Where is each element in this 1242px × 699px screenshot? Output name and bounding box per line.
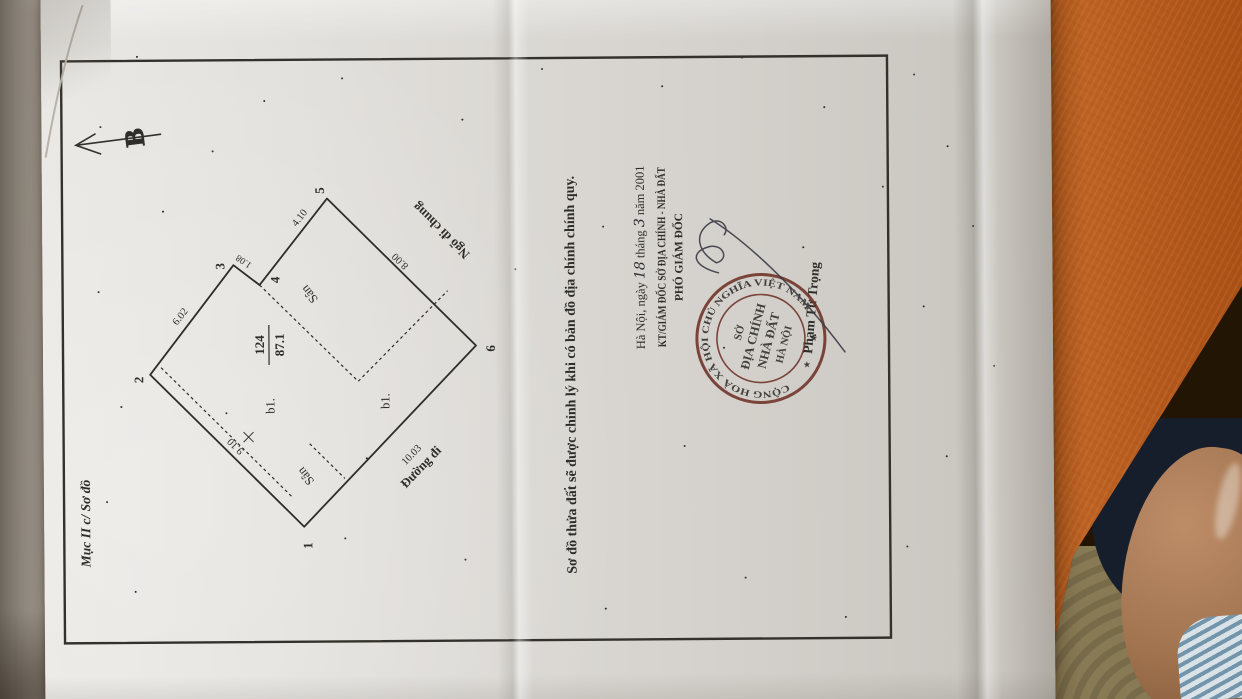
stamp-outer-ring [683, 260, 839, 416]
parcel-number: 124 [252, 335, 267, 355]
stamp-center-line: HÀ NỘI [773, 324, 795, 364]
month-word: tháng [633, 230, 647, 259]
stamp-center-line: SỞ [732, 324, 747, 342]
vertex-label: 5 [312, 187, 327, 194]
official-stamp: CỘNG HOÀ XÃ HỘI CHỦ NGHĨA VIỆT NAM ★ ★ S… [683, 260, 839, 416]
diagram-frame [61, 56, 891, 644]
stamp-inner-ring [707, 285, 814, 392]
vertex-label: 2 [131, 377, 146, 384]
photo-of-land-plot-document: Mục II c/ Sơ đồ B 1 2 3 4 5 6 [0, 0, 1242, 699]
signature-block: Hà Nội, ngày 18 tháng 3 năm 2001 KT/GIÁM… [632, 165, 686, 349]
interior-dashed-line [161, 367, 292, 498]
parcel-area: 87.1 [272, 333, 287, 356]
stamp-center-line: NHÀ ĐẤT [754, 310, 783, 370]
stamp-ring-path [696, 274, 810, 399]
dimension-label: 8.00 [390, 250, 411, 271]
north-label: B [118, 127, 150, 149]
parcel-boundary [149, 198, 477, 528]
stamp-center-line: ĐỊA CHÍNH [738, 302, 769, 371]
handwritten-month: 3 [632, 218, 648, 227]
tick-mark [244, 432, 254, 442]
stamp-ring-text: CỘNG HOÀ XÃ HỘI CHỦ NGHĨA VIỆT NAM [687, 262, 818, 407]
handwritten-signature [696, 218, 845, 353]
year-text: năm 2001 [633, 165, 647, 215]
interior-dashed-line [260, 284, 449, 382]
paper-edge-shading [995, 0, 1055, 699]
section-label: Mục II c/ Sơ đồ [78, 479, 94, 568]
caption: Sơ đồ thửa đất sẽ được chỉnh lý khi có b… [562, 176, 581, 574]
dimension-label: 4.10 [290, 208, 310, 229]
handwritten-day: 18 [632, 261, 648, 279]
paper-fold-crease [952, 0, 1001, 699]
dimension-label: 6.02 [171, 306, 191, 327]
document-content: Mục II c/ Sơ đồ B 1 2 3 4 5 6 [40, 0, 1055, 699]
approver-title: KT/GIÁM ĐỐC SỞ ĐỊA CHÍNH - NHÀ ĐẤT [655, 167, 669, 347]
signature-flourish [710, 218, 845, 353]
signature-loops [696, 221, 726, 273]
paper-corner-curl [40, 0, 111, 144]
dimension-label: 9.10 [225, 436, 246, 457]
parcel-number-area: 124 87.1 [252, 325, 287, 365]
stamp-star: ★ [808, 333, 820, 343]
vertex-label: 4 [267, 276, 282, 283]
signer-name: Phạm Tử Trọng [800, 261, 822, 354]
approver-subtitle: PHÓ GIÁM ĐỐC [672, 213, 686, 301]
stamp-star: ★ [801, 359, 813, 369]
paper-fold-crease [492, 0, 533, 699]
vertex-label: 3 [212, 262, 227, 269]
date-prefix: Hà Nội, ngày [634, 281, 648, 349]
yard-label: Sân [294, 464, 317, 488]
dimension-label: 10.03 [400, 443, 424, 468]
vertex-label: 1 [300, 542, 315, 549]
road-label: Đường đi [397, 442, 444, 490]
document-paper: Mục II c/ Sơ đồ B 1 2 3 4 5 6 [40, 0, 1055, 699]
dimension-label: 1.08 [234, 252, 254, 270]
building-label: b1. [263, 398, 277, 414]
building-label: b1. [378, 393, 392, 409]
interior-dashed-line [310, 443, 345, 478]
date-line: Hà Nội, ngày 18 tháng 3 năm 2001 [632, 165, 649, 349]
alley-label: Ngõ đi chung [409, 199, 472, 262]
yard-label: Sân [298, 282, 321, 306]
